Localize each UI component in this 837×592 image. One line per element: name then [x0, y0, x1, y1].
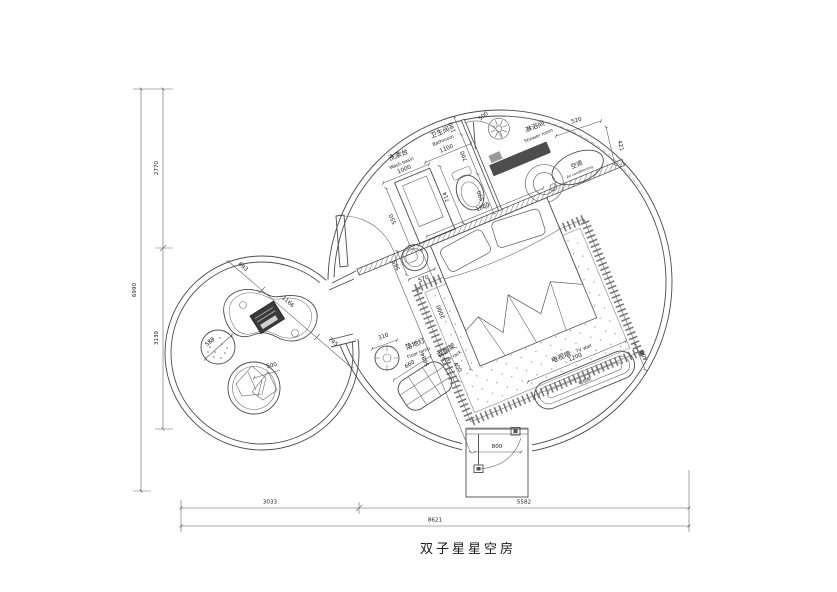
laptop-icon — [250, 301, 285, 334]
floorplan-canvas: 电视柜 洗漱台 Wash basin 1000 卫生间 Bathroom 110… — [0, 0, 837, 592]
dim-coat-660: 660 — [404, 359, 417, 370]
dim-right-width: 5582 — [517, 500, 531, 506]
dim-421: 421 — [616, 140, 624, 152]
dim-570: 570 — [418, 274, 431, 284]
dim-bathroom-width: 1100 — [439, 144, 455, 155]
dim-entrance-800: 800 — [492, 444, 503, 450]
floor-lamp-icon: 310 落地灯 Floor lamp — [372, 332, 431, 370]
dim-pouf-589: 589 — [204, 336, 216, 348]
pouf: 589 — [201, 330, 235, 364]
dim-lower-height: 3139 — [154, 330, 160, 345]
page-title: 双子星星空房 — [420, 541, 516, 557]
kidney-table — [224, 289, 318, 340]
dim-cushion-500: 500 — [266, 362, 278, 370]
dim-upper-height: 2770 — [154, 160, 160, 175]
dim-overall-width: 8621 — [428, 518, 443, 524]
dim-bed-width-1800: 1800 — [475, 202, 491, 213]
dim-overall-height: 6990 — [132, 282, 138, 297]
interior-rotated-group: 电视柜 洗漱台 Wash basin 1000 卫生间 Bathroom 110… — [317, 64, 703, 466]
dim-lamp-310: 310 — [378, 332, 390, 341]
floorplan-drawing: 电视柜 洗漱台 Wash basin 1000 卫生间 Bathroom 110… — [0, 0, 837, 592]
shower-drain-icon — [485, 115, 512, 142]
dim-1166: 1166 — [280, 295, 295, 309]
dim-520: 520 — [571, 116, 583, 125]
dim-left-width: 3033 — [263, 500, 278, 506]
cushion-circle: 500 — [228, 362, 280, 414]
coat-rack-icon — [394, 358, 456, 415]
dim-shower-door-500: 500 — [478, 111, 490, 123]
door-leaf — [336, 215, 348, 267]
